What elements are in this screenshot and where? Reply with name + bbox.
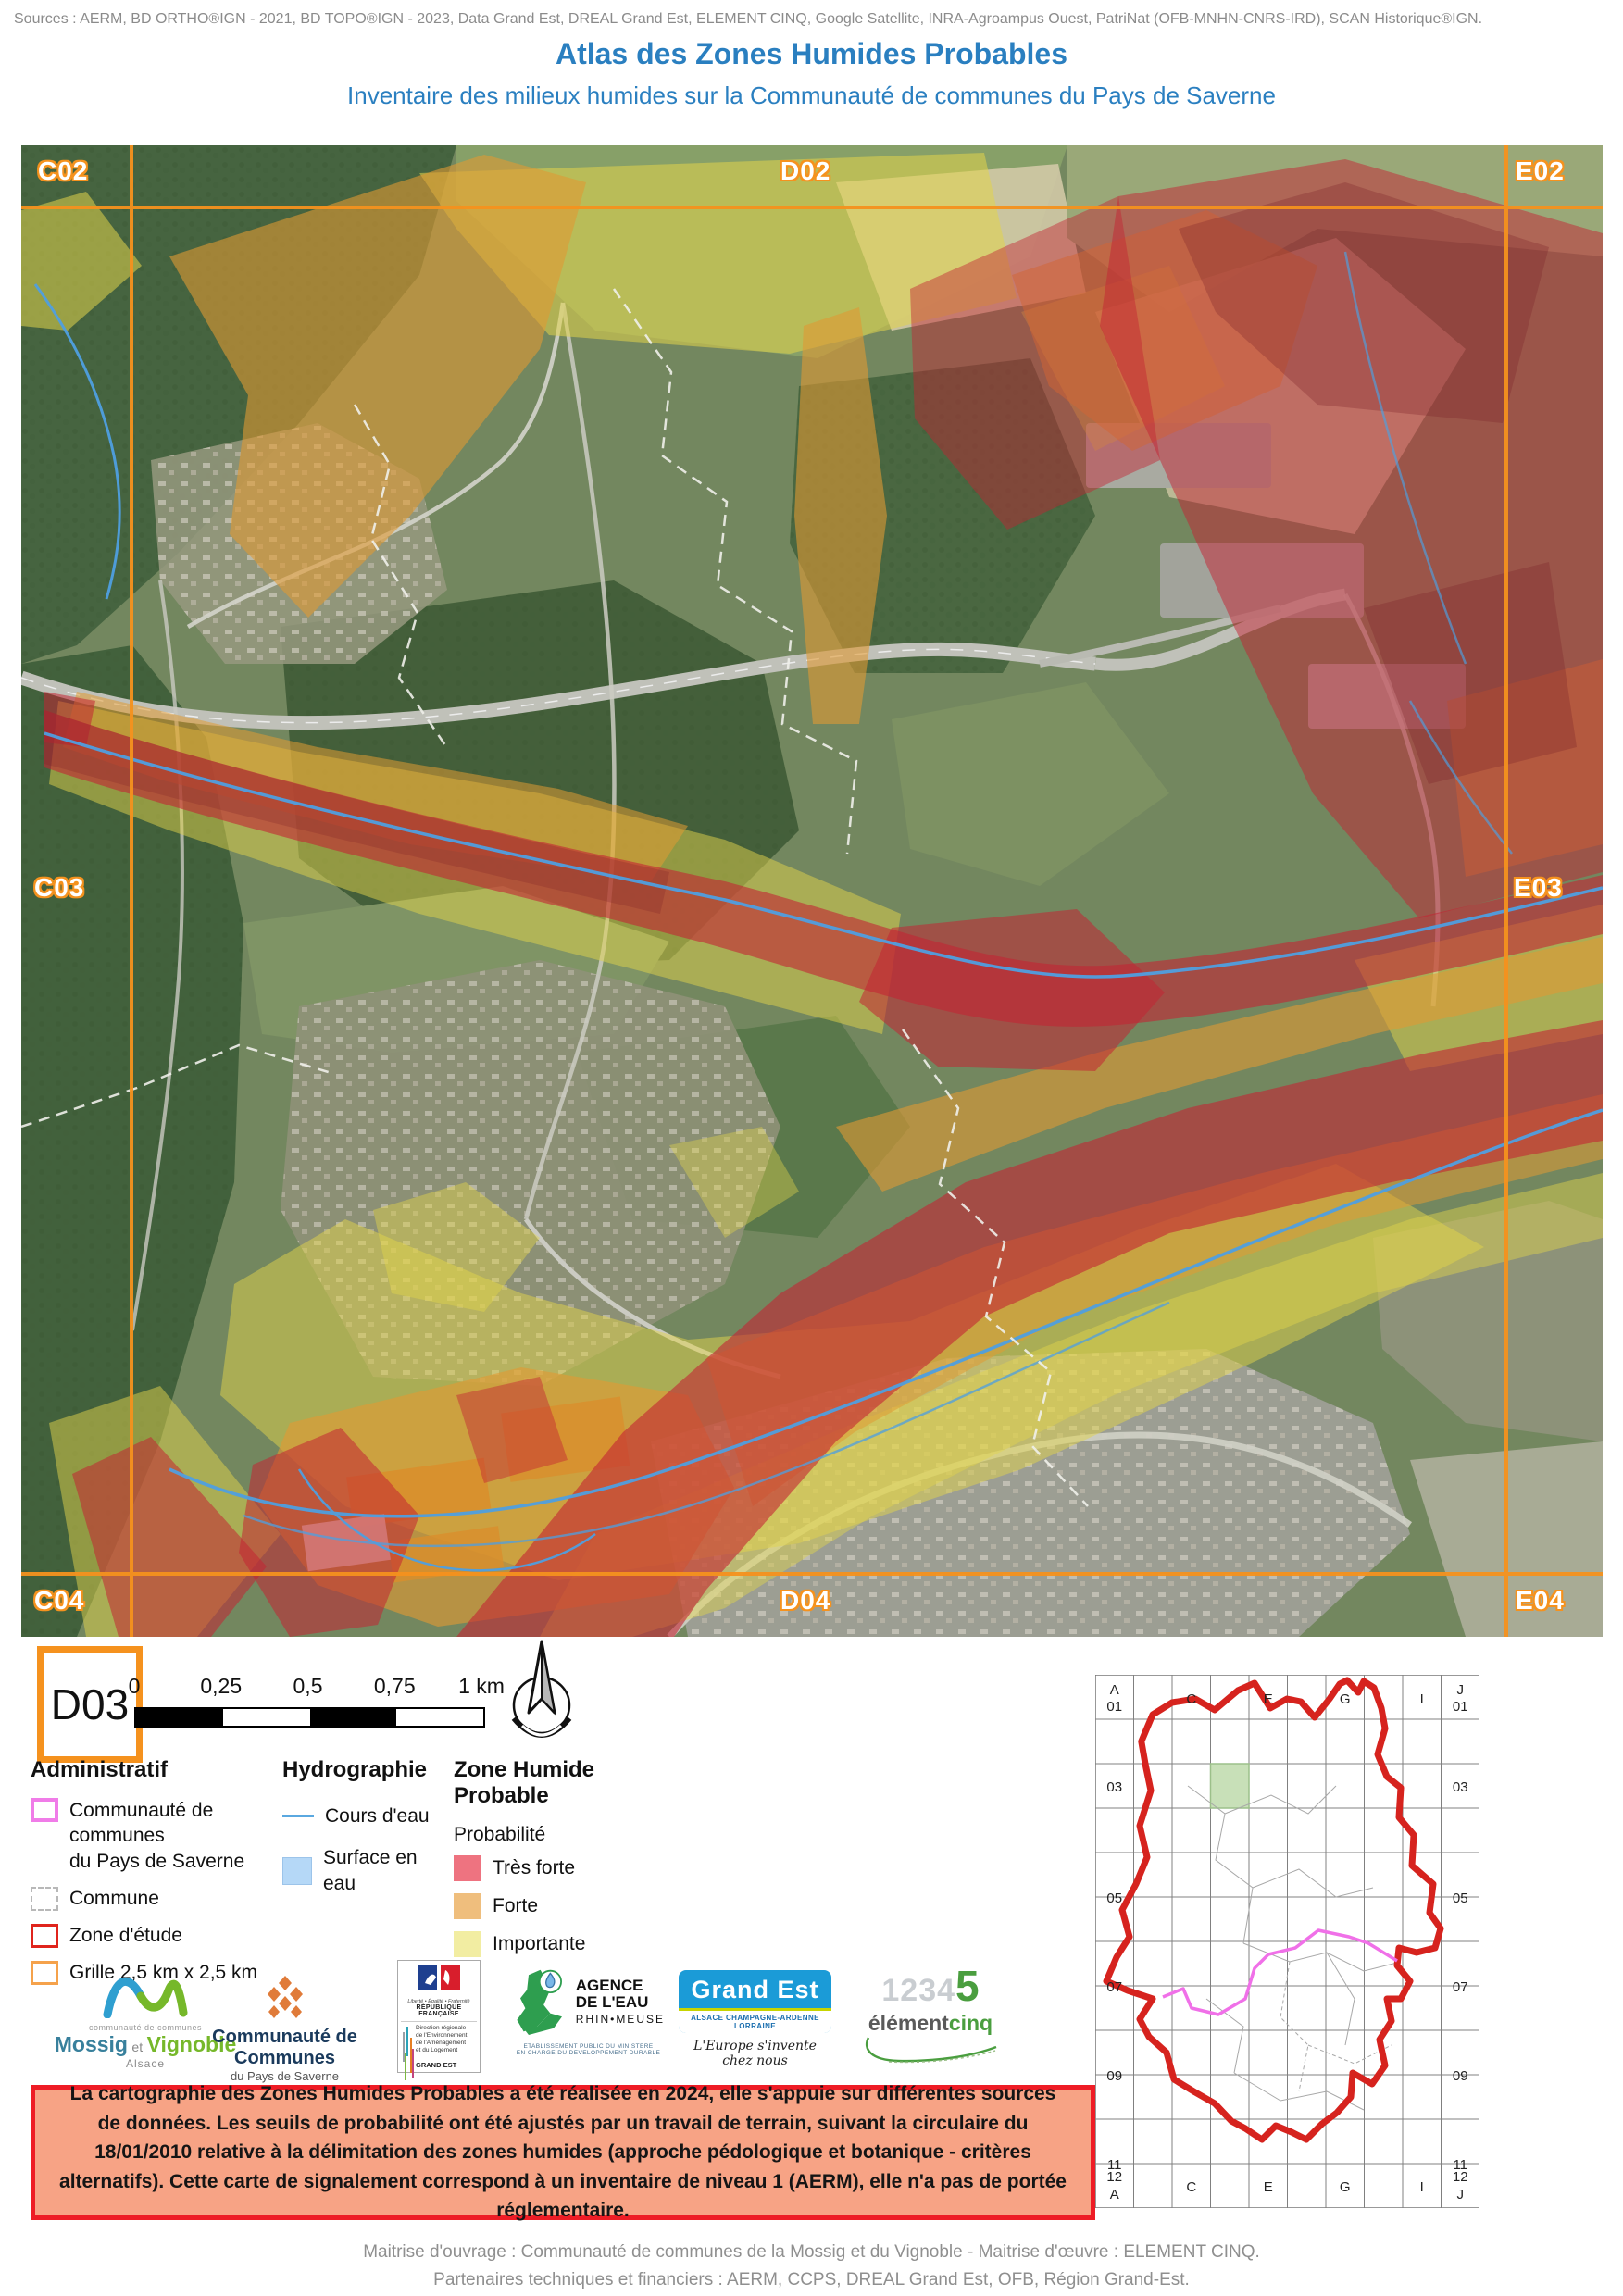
agence-eau-basin-icon [512,1963,572,2040]
dreal-direction-line: et du Logement [416,2047,457,2053]
dreal-region: GRAND EST [416,2061,468,2069]
scale-tick: 0,75 [374,1674,416,1699]
svg-text:07: 07 [1106,1979,1122,1995]
scale-segment [136,1709,223,1726]
element5-swoosh-icon [861,2036,1000,2064]
element5-five: 5 [955,1962,980,2010]
svg-text:C: C [1186,2179,1196,2195]
legend-item-cc: Communauté de communes du Pays de Savern… [31,1798,276,1874]
svg-text:12: 12 [1106,2169,1122,2185]
agence-name-line2: DE L'EAU [576,1994,665,2011]
notice-box: La cartographie des Zones Humides Probab… [31,2085,1095,2220]
map-grid-label-e04: E04 [1516,1586,1565,1616]
svg-text:G: G [1340,1691,1351,1707]
svg-text:01: 01 [1453,1699,1468,1715]
forte-swatch-icon [454,1893,481,1919]
french-flag-icon [418,1965,460,1992]
agence-name-line3: RHIN•MEUSE [576,2013,665,2026]
svg-text:12: 12 [1453,2169,1468,2185]
logo-agence-eau-rhin-meuse: AGENCE DE L'EAU RHIN•MEUSE ETABLISSEMENT… [512,1963,665,2056]
agence-subtitle-line2: EN CHARGE DU DEVELOPPEMENT DURABLE [512,2050,665,2056]
sources-line: Sources : AERM, BD ORTHO®IGN - 2021, BD … [14,11,1616,28]
legend-item-surface-eau: Surface en eau [282,1845,449,1896]
svg-text:E: E [1264,2179,1273,2195]
grand-est-band: ALSACE CHAMPAGNE-ARDENNE LORRAINE [679,2011,831,2033]
legend-label: Communauté de communes [69,1798,276,1849]
element5-name1: élément [868,2011,949,2035]
logo-element-cinq: 12345 élémentcinq [856,1961,1005,2068]
legend-item-zone-etude: Zone d'étude [31,1923,276,1948]
dreal-direction-line: de l'Environnement, [416,2032,468,2039]
element5-name2: cinq [949,2011,993,2035]
legend-label: Très forte [493,1855,575,1880]
agence-name-line1: AGENCE [576,1978,665,1994]
svg-text:G: G [1340,2179,1351,2195]
grand-est-slogan: L'Europe s'invente chez nous [679,2039,831,2068]
legend-zone-humide: Zone Humide Probable Probabilité Très fo… [454,1757,657,1969]
scale-tick: 1 km [458,1674,505,1699]
agence-subtitle-line1: ETABLISSEMENT PUBLIC DU MINISTERE [512,2043,665,2050]
legend-item-commune: Commune [31,1886,276,1911]
footer-line1: Maitrise d'ouvrage : Communauté de commu… [0,2242,1623,2263]
svg-text:09: 09 [1106,2068,1122,2084]
map-grid-label-c02: C02 [38,156,88,186]
legend-item-tres-forte: Très forte [454,1855,657,1881]
legend-item-forte: Forte [454,1893,657,1919]
scale-tick: 0,5 [293,1674,323,1699]
svg-text:I: I [1420,1691,1424,1707]
svg-text:A: A [1110,1682,1119,1698]
overview-index-map[interactable]: A01 C E G I J01 0303 0505 0707 0909 1111… [1095,1675,1479,2208]
map-grid-label-e03: E03 [1514,873,1563,903]
legend-label: Zone d'étude [69,1923,182,1948]
page-subtitle: Inventaire des milieux humides sur la Co… [0,81,1623,110]
legend-item-importante: Importante [454,1931,657,1957]
surface-eau-swatch-icon [282,1857,312,1885]
satellite-map-graphic [21,145,1603,1637]
scale-bar-segments [134,1707,485,1728]
atlas-page: Sources : AERM, BD ORTHO®IGN - 2021, BD … [0,0,1623,2296]
legend-subtitle: Probabilité [454,1824,657,1846]
legend-label: Commune [69,1886,159,1911]
saverne-diamonds-icon [256,1974,315,2022]
legend-title: Hydrographie [282,1757,449,1783]
footer-line2: Partenaires techniques et financiers : A… [0,2270,1623,2290]
legend-item-cours-eau: Cours d'eau [282,1803,449,1828]
svg-text:C: C [1186,1691,1196,1707]
legend-label: du Pays de Saverne [69,1849,276,1874]
legend-title: Administratif [31,1757,276,1783]
logo-dreal-grand-est: Liberté • Égalité • Fraternité RÉPUBLIQU… [397,1960,481,2073]
grand-est-name-a: Grand [691,1976,769,2003]
importante-swatch-icon [454,1931,481,1957]
commune-boundary-swatch-icon [31,1887,58,1911]
overview-current-cell [1211,1764,1250,1808]
svg-text:A: A [1110,2187,1119,2202]
svg-text:09: 09 [1453,2068,1468,2084]
grand-est-box: Grand Est ALSACE CHAMPAGNE-ARDENNE LORRA… [679,1970,831,2033]
dreal-direction-line: de l'Aménagement [416,2040,466,2046]
legend-label: Surface en eau [323,1845,449,1896]
svg-text:05: 05 [1453,1890,1468,1906]
svg-text:J: J [1457,2187,1465,2202]
svg-text:01: 01 [1106,1699,1122,1715]
mossig-et: et [131,2040,143,2054]
tres-forte-swatch-icon [454,1855,481,1881]
scale-segment [396,1709,483,1726]
svg-text:03: 03 [1106,1779,1122,1795]
legend-title: Zone Humide Probable [454,1757,657,1809]
legend-label: Cours d'eau [325,1803,430,1828]
svg-text:05: 05 [1106,1890,1122,1906]
legend-administratif: Administratif Communauté de communes du … [31,1757,276,1998]
element5-digits: 1234 [881,1973,955,2008]
mossig-name: Mossig [55,2032,128,2056]
main-map[interactable]: C02 D02 E02 C03 E03 C04 D04 E04 [21,145,1603,1637]
scale-bar: 0 0,25 0,5 0,75 1 km [134,1674,481,1729]
logo-grand-est: Grand Est ALSACE CHAMPAGNE-ARDENNE LORRA… [679,1970,831,2068]
legend-hydrographie: Hydrographie Cours d'eau Surface en eau [282,1757,449,1908]
map-grid-label-d04: D04 [780,1586,830,1616]
svg-text:E: E [1264,1691,1273,1707]
grand-est-name-b: Est [778,1976,819,2003]
svg-text:03: 03 [1453,1779,1468,1795]
scale-segment [223,1709,310,1726]
current-cell-box: D03 [37,1646,143,1763]
svg-text:I: I [1420,2179,1424,2195]
legend-label: Importante [493,1931,585,1956]
page-title: Atlas des Zones Humides Probables [0,37,1623,71]
cc-boundary-swatch-icon [31,1798,58,1822]
current-cell-label: D03 [51,1679,129,1729]
cours-eau-swatch-icon [282,1815,314,1817]
map-grid-label-c03: C03 [34,873,84,903]
scale-tick: 0,25 [200,1674,242,1699]
dreal-direction-line: Direction régionale [416,2025,466,2031]
map-grid-label-d02: D02 [780,156,830,186]
scale-segment [310,1709,397,1726]
mossig-m-icon [94,1965,196,2018]
notice-text: La cartographie des Zones Humides Probab… [35,2074,1091,2231]
saverne-name-line1: Communauté de Communes [185,2027,384,2069]
svg-text:07: 07 [1453,1979,1468,1995]
dreal-republic: RÉPUBLIQUE FRANÇAISE [401,2004,477,2017]
logo-cc-pays-saverne: Communauté de Communes du Pays de Savern… [185,1974,384,2083]
scale-tick: 0 [129,1674,141,1699]
north-arrow-icon [507,1639,576,1750]
map-grid-label-e02: E02 [1516,156,1565,186]
zone-etude-swatch-icon [31,1924,58,1948]
map-grid-label-c04: C04 [34,1586,84,1616]
svg-text:J: J [1457,1682,1465,1698]
legend-label: Forte [493,1893,538,1918]
